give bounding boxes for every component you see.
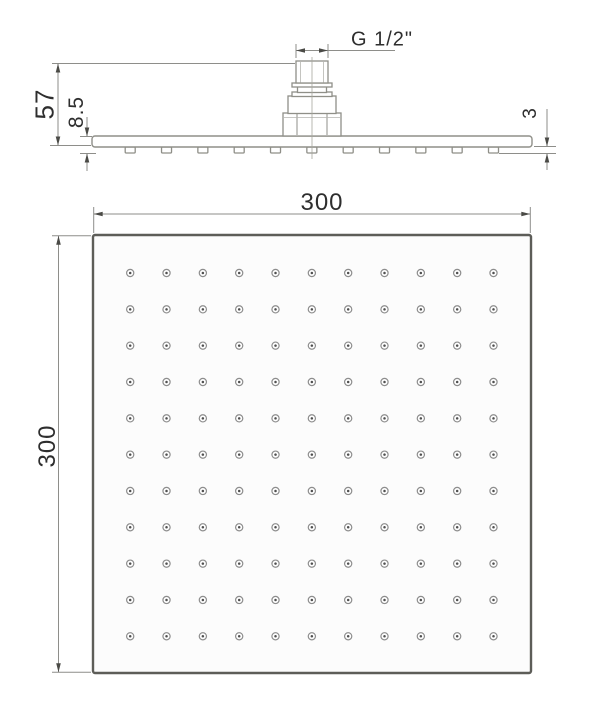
technical-drawing: G 1/2" 57 8.5 3 300 300 xyxy=(0,0,603,713)
nozzle-center xyxy=(165,562,168,565)
nozzle-center xyxy=(347,453,350,456)
nozzle-center xyxy=(383,417,386,420)
nozzle-center xyxy=(238,453,241,456)
nozzle-center xyxy=(347,635,350,638)
dimension-arrow xyxy=(94,212,103,217)
nozzle-center xyxy=(383,453,386,456)
dim-label-nozzle-protrusion: 3 xyxy=(520,107,542,119)
nozzle-center xyxy=(492,417,495,420)
nozzle-center xyxy=(238,599,241,602)
nozzle-center xyxy=(420,562,423,565)
nozzle-center xyxy=(420,526,423,529)
nozzle-center xyxy=(456,562,459,565)
nozzle-center xyxy=(383,381,386,384)
nozzle-center xyxy=(383,562,386,565)
nozzle-center xyxy=(420,490,423,493)
dim-label-thread-size: G 1/2" xyxy=(351,29,413,52)
nozzle-center xyxy=(238,308,241,311)
nozzle-center xyxy=(274,490,277,493)
dimension-arrow xyxy=(85,154,90,163)
nozzle-center xyxy=(129,417,132,420)
nozzle-center xyxy=(311,453,314,456)
nozzle-center xyxy=(238,417,241,420)
nozzle-center xyxy=(129,453,132,456)
nozzle-tab xyxy=(271,147,281,153)
nozzle-center xyxy=(492,490,495,493)
dimension-arrow xyxy=(296,48,305,53)
nozzle-center xyxy=(274,526,277,529)
nozzle-center xyxy=(456,272,459,275)
nozzle-center xyxy=(347,381,350,384)
nozzle-center xyxy=(202,599,205,602)
dimension-arrow xyxy=(319,48,328,53)
nozzle-center xyxy=(456,417,459,420)
nozzle-tab xyxy=(162,147,172,153)
nozzle-center xyxy=(347,562,350,565)
nozzle-center xyxy=(420,599,423,602)
nozzle-center xyxy=(129,344,132,347)
nozzle-center xyxy=(311,344,314,347)
nozzle-center xyxy=(165,381,168,384)
nozzle-center xyxy=(274,417,277,420)
nozzle-center xyxy=(347,526,350,529)
nozzle-center xyxy=(238,635,241,638)
dim-label-overall-height: 57 xyxy=(30,89,61,120)
nozzle-tab xyxy=(198,147,208,153)
nozzle-center xyxy=(383,272,386,275)
nozzle-center xyxy=(311,272,314,275)
nozzle-tab xyxy=(343,147,353,153)
nozzle-center xyxy=(202,562,205,565)
nozzle-center xyxy=(311,562,314,565)
nozzle-center xyxy=(420,417,423,420)
nozzle-center xyxy=(165,344,168,347)
dimension-arrow xyxy=(85,128,90,137)
nozzle-center xyxy=(238,526,241,529)
nozzle-center xyxy=(165,453,168,456)
nozzle-center xyxy=(311,308,314,311)
nozzle-center xyxy=(456,453,459,456)
nozzle-center xyxy=(129,381,132,384)
nozzle-center xyxy=(202,272,205,275)
nozzle-center xyxy=(383,599,386,602)
nozzle-center xyxy=(238,344,241,347)
nozzle-center xyxy=(165,308,168,311)
nozzle-center xyxy=(238,562,241,565)
dimension-arrow xyxy=(521,212,530,217)
nozzle-center xyxy=(456,308,459,311)
nozzle-center xyxy=(274,453,277,456)
nozzle-center xyxy=(202,635,205,638)
nozzle-center xyxy=(311,526,314,529)
nozzle-tab xyxy=(380,147,390,153)
nozzle-center xyxy=(420,272,423,275)
nozzle-center xyxy=(129,562,132,565)
nozzle-center xyxy=(311,635,314,638)
nozzle-center xyxy=(420,453,423,456)
nozzle-center xyxy=(456,381,459,384)
nozzle-center xyxy=(311,490,314,493)
nozzle-center xyxy=(129,599,132,602)
dimension-arrow xyxy=(545,138,550,147)
nozzle-center xyxy=(492,635,495,638)
nozzle-center xyxy=(202,526,205,529)
dim-label-face-height: 300 xyxy=(34,424,62,467)
nozzle-center xyxy=(311,599,314,602)
nozzle-center xyxy=(202,344,205,347)
nozzle-center xyxy=(383,635,386,638)
nozzle-center xyxy=(311,417,314,420)
nozzle-center xyxy=(456,599,459,602)
nozzle-center xyxy=(129,272,132,275)
nozzle-center xyxy=(274,272,277,275)
nozzle-center xyxy=(129,635,132,638)
nozzle-center xyxy=(238,490,241,493)
nozzle-center xyxy=(383,308,386,311)
nozzle-center xyxy=(202,417,205,420)
nozzle-center xyxy=(347,490,350,493)
dimension-arrow xyxy=(56,236,61,245)
nozzle-tab xyxy=(452,147,462,153)
nozzle-center xyxy=(274,344,277,347)
nozzle-center xyxy=(347,344,350,347)
nozzle-center xyxy=(347,417,350,420)
nozzle-center xyxy=(456,490,459,493)
nozzle-center xyxy=(202,308,205,311)
nozzle-center xyxy=(492,453,495,456)
nozzle-center xyxy=(274,599,277,602)
nozzle-center xyxy=(420,344,423,347)
nozzle-center xyxy=(165,272,168,275)
nozzle-center xyxy=(165,417,168,420)
nozzle-center xyxy=(165,599,168,602)
nozzle-center xyxy=(129,490,132,493)
nozzle-center xyxy=(383,490,386,493)
dim-label-head-thickness: 8.5 xyxy=(65,96,89,128)
nozzle-center xyxy=(238,381,241,384)
nozzle-center xyxy=(238,272,241,275)
nozzle-center xyxy=(456,635,459,638)
nozzle-center xyxy=(202,490,205,493)
nozzle-center xyxy=(165,526,168,529)
nozzle-center xyxy=(202,381,205,384)
dimension-arrow xyxy=(56,64,61,73)
nozzle-center xyxy=(202,453,205,456)
nozzle-tab xyxy=(234,147,244,153)
nozzle-center xyxy=(274,308,277,311)
nozzle-tab xyxy=(125,147,135,153)
nozzle-center xyxy=(165,635,168,638)
nozzle-center xyxy=(492,526,495,529)
nozzle-center xyxy=(420,381,423,384)
nozzle-center xyxy=(456,526,459,529)
nozzle-center xyxy=(347,599,350,602)
dim-label-face-width: 300 xyxy=(300,189,343,217)
nozzle-center xyxy=(492,381,495,384)
nozzle-center xyxy=(456,344,459,347)
nozzle-center xyxy=(129,308,132,311)
nozzle-center xyxy=(383,344,386,347)
nozzle-tab xyxy=(416,147,426,153)
nozzle-center xyxy=(347,272,350,275)
nozzle-tab xyxy=(489,147,499,153)
nozzle-center xyxy=(347,308,350,311)
nozzle-center xyxy=(274,381,277,384)
nozzle-center xyxy=(165,490,168,493)
dimension-arrow xyxy=(56,137,61,146)
nozzle-center xyxy=(420,635,423,638)
nozzle-center xyxy=(492,308,495,311)
nozzle-center xyxy=(492,599,495,602)
nozzle-center xyxy=(420,308,423,311)
nozzle-center xyxy=(492,562,495,565)
nozzle-center xyxy=(492,344,495,347)
nozzle-center xyxy=(492,272,495,275)
drawing-canvas xyxy=(0,0,603,713)
nozzle-center xyxy=(274,562,277,565)
dimension-arrow xyxy=(545,154,550,163)
nozzle-center xyxy=(383,526,386,529)
dimension-arrow xyxy=(56,663,61,672)
nozzle-center xyxy=(129,526,132,529)
nozzle-center xyxy=(311,381,314,384)
nozzle-center xyxy=(274,635,277,638)
